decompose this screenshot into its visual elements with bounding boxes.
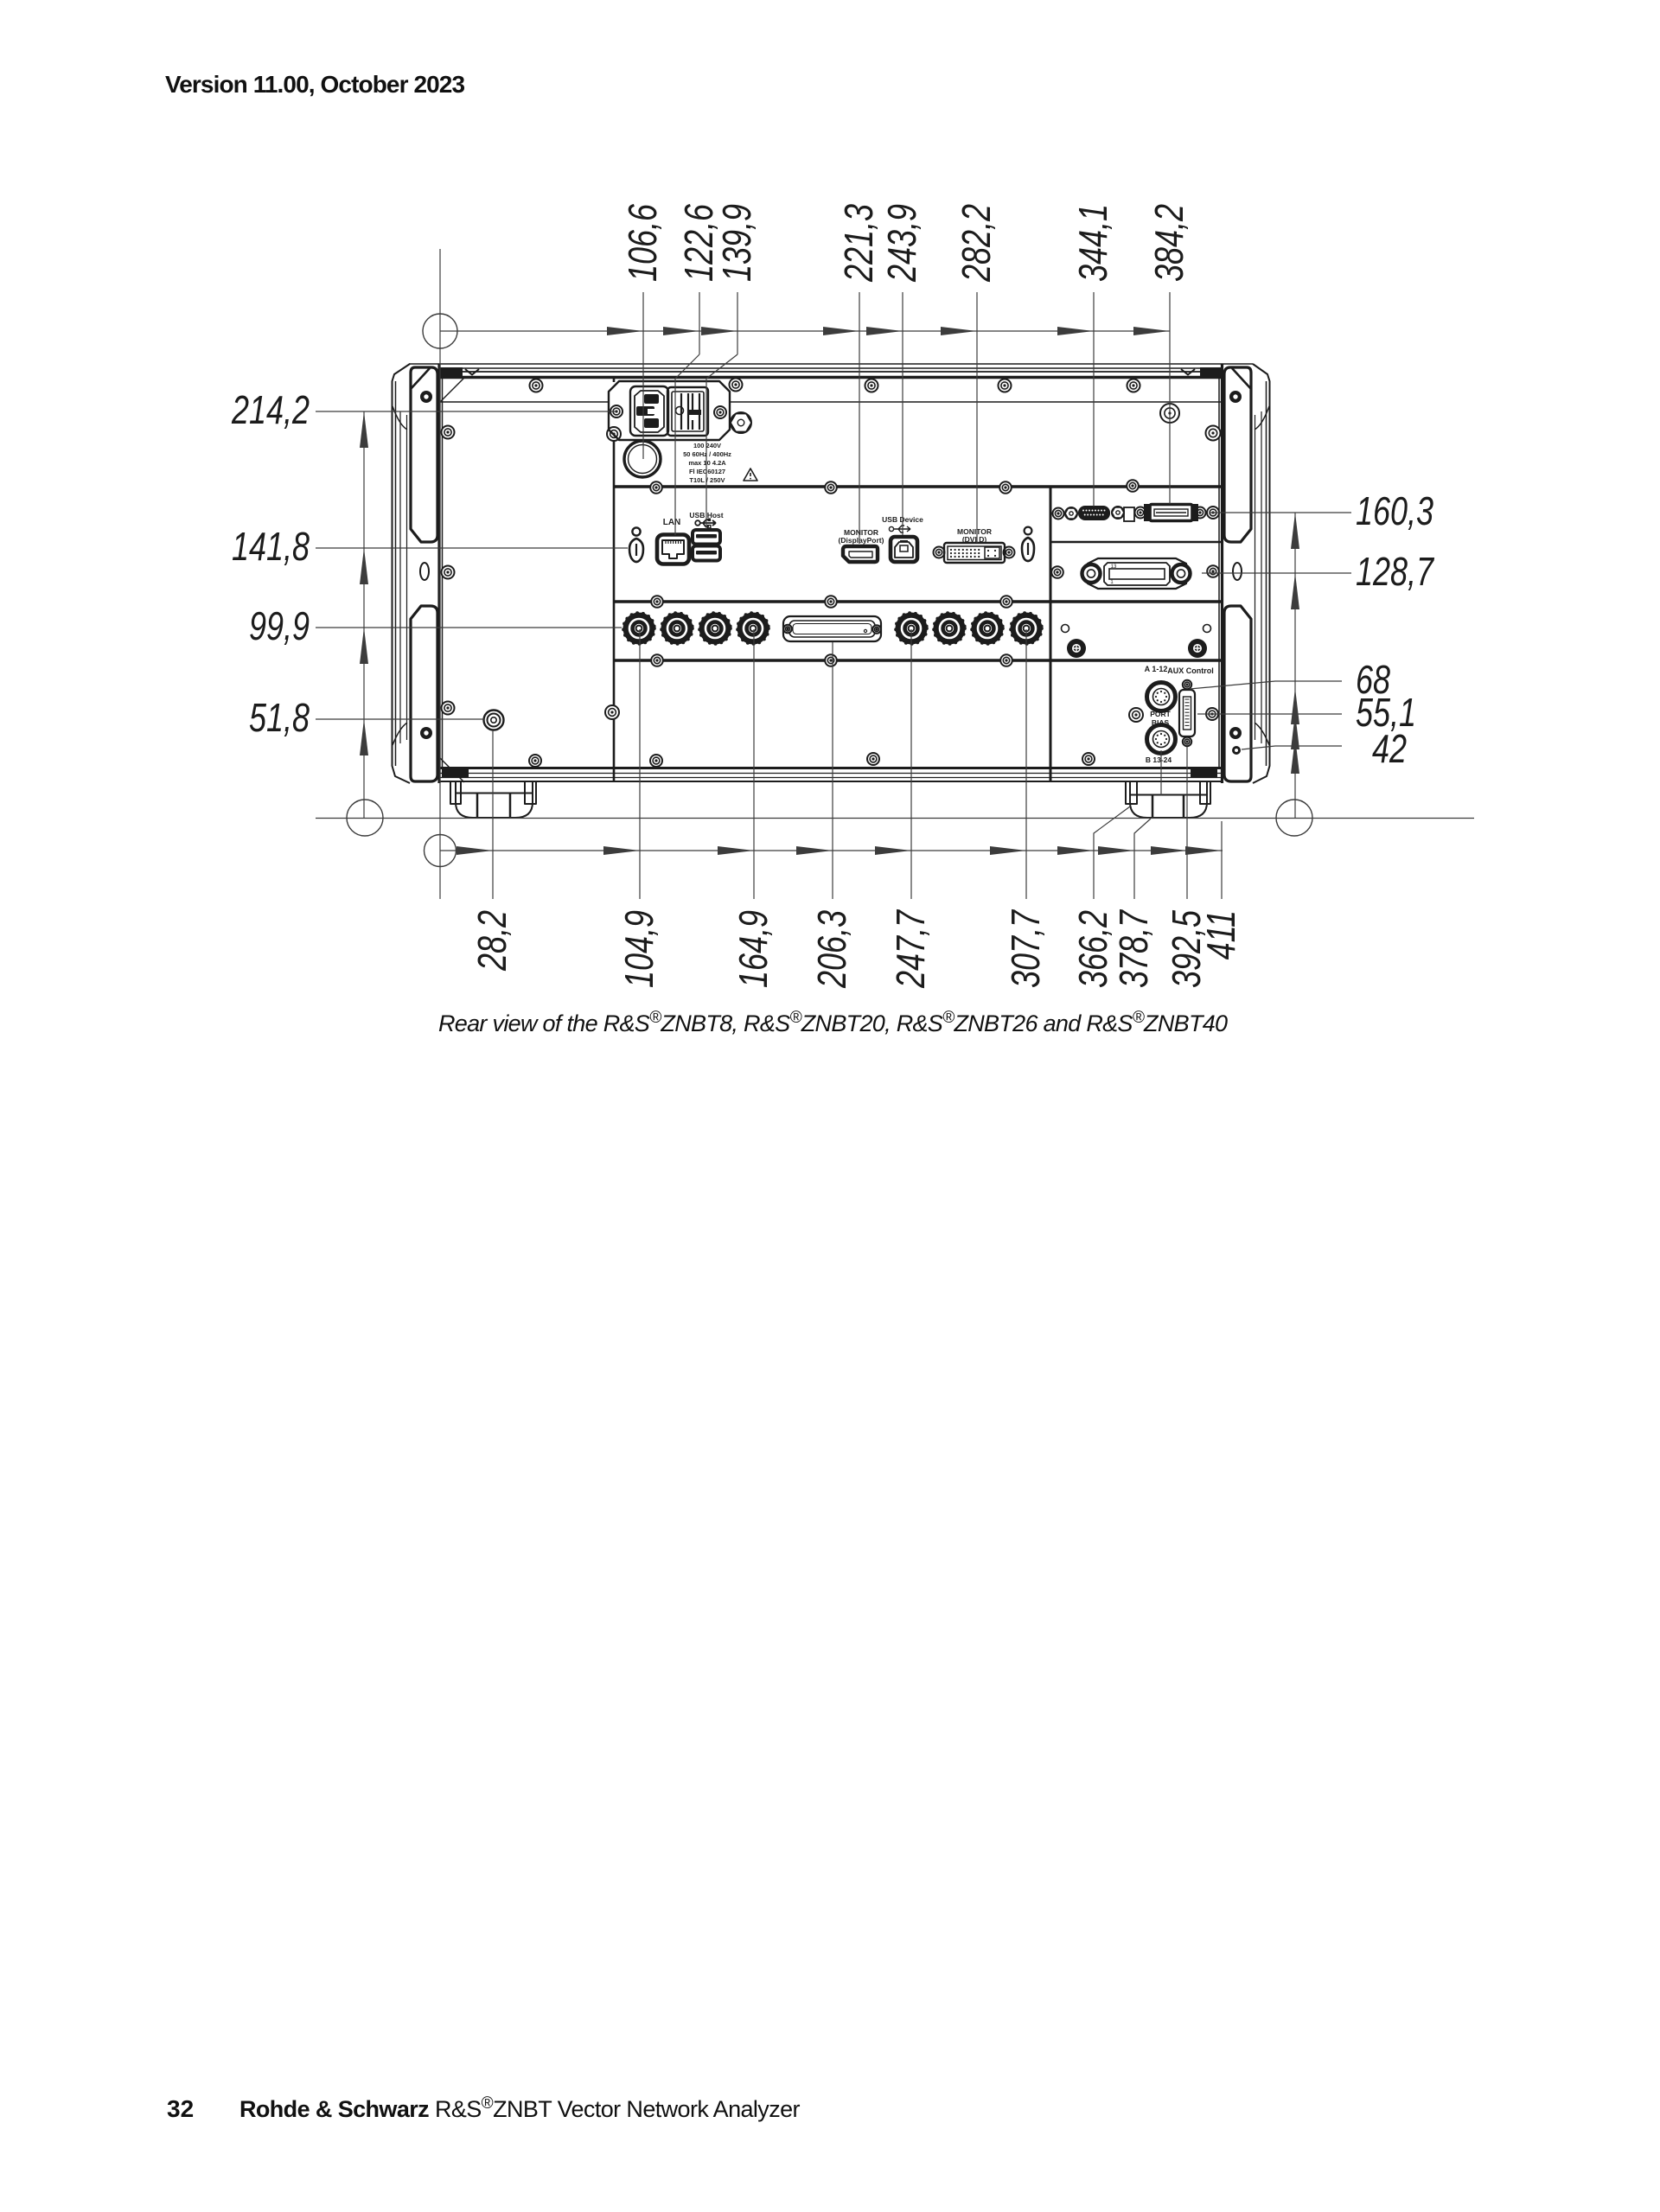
svg-text:100 240V: 100 240V (693, 442, 721, 449)
svg-text:128,7: 128,7 (1356, 550, 1435, 594)
svg-text:344,1: 344,1 (1071, 204, 1115, 282)
svg-text:164,9: 164,9 (731, 910, 776, 988)
svg-text:104,9: 104,9 (617, 910, 661, 988)
svg-text:13: 13 (1111, 564, 1117, 570)
svg-text:AUX Control: AUX Control (1167, 666, 1214, 675)
svg-text:T10L / 250V: T10L / 250V (689, 476, 725, 484)
svg-text:221,3: 221,3 (837, 204, 881, 283)
svg-text:378,7: 378,7 (1112, 908, 1156, 988)
svg-text:28,2: 28,2 (470, 910, 514, 972)
svg-text:160,3: 160,3 (1356, 489, 1433, 533)
svg-text:206,3: 206,3 (810, 910, 854, 989)
svg-text:282,2: 282,2 (954, 204, 999, 283)
svg-text:384,2: 384,2 (1147, 204, 1191, 282)
svg-text:A 1-12: A 1-12 (1145, 665, 1168, 673)
svg-text:Rohde & Schwarz R&S®ZNBT Vecto: Rohde & Schwarz R&S®ZNBT Vector Network … (239, 2094, 801, 2122)
svg-text:141,8: 141,8 (232, 525, 310, 569)
svg-text:(DisplayPort): (DisplayPort) (839, 536, 884, 545)
svg-text:366,2: 366,2 (1071, 910, 1115, 988)
svg-text:99,9: 99,9 (249, 604, 310, 648)
svg-text:106,6: 106,6 (621, 204, 665, 282)
svg-text:411: 411 (1199, 910, 1243, 959)
svg-text:Version 11.00, October 2023: Version 11.00, October 2023 (165, 71, 464, 98)
svg-text:B 13-24: B 13-24 (1146, 755, 1172, 764)
svg-text:42: 42 (1372, 727, 1407, 771)
svg-text:214,2: 214,2 (231, 388, 310, 432)
svg-text:PORT: PORT (1150, 710, 1171, 718)
svg-text:307,7: 307,7 (1004, 908, 1048, 988)
svg-text:243,9: 243,9 (880, 204, 924, 283)
svg-text:max 10 4.2A: max 10 4.2A (688, 459, 726, 467)
svg-text:51,8: 51,8 (249, 696, 310, 740)
svg-text:139,9: 139,9 (715, 204, 759, 282)
svg-text:32: 32 (167, 2095, 194, 2122)
svg-text:LAN: LAN (663, 518, 681, 527)
svg-text:50 60Hz / 400Hz: 50 60Hz / 400Hz (683, 450, 731, 458)
svg-text:Rear view of the R&S®ZNBT8, R&: Rear view of the R&S®ZNBT8, R&S®ZNBT20, … (438, 1009, 1228, 1036)
svg-text:247,7: 247,7 (889, 908, 933, 989)
svg-text:Fl IEC60127: Fl IEC60127 (689, 468, 725, 475)
